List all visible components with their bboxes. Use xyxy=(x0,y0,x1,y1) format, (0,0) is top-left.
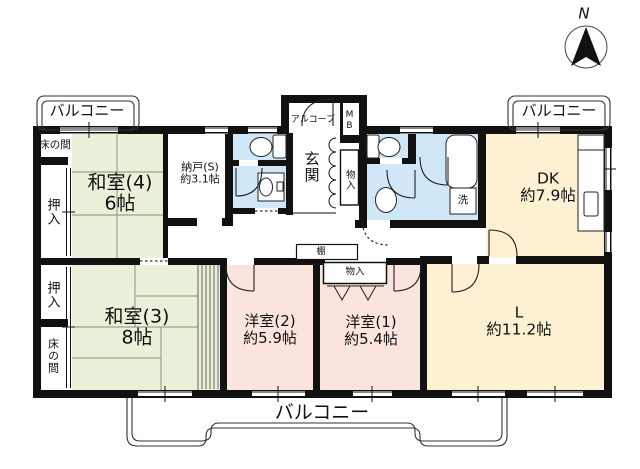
balcony-label-top-right: バルコニー xyxy=(522,103,597,120)
room-area: 約7.9帖 xyxy=(520,188,576,205)
room-label-washitsu3: 和室(3) 8帖 xyxy=(105,307,170,350)
window-symbol xyxy=(248,127,277,134)
window-symbol xyxy=(400,127,433,134)
room-area: 6帖 xyxy=(88,194,153,215)
tokonoma-top-label: 床の間 xyxy=(39,140,71,152)
room-label-nando: 納戸(S) 約3.1帖 xyxy=(180,162,220,187)
floor-plan: N バルコニー バルコニー バルコニー 床の間 和室(4) 6帖 納戸(S) 約… xyxy=(0,0,640,469)
tokonoma-bottom-label: 床の間 xyxy=(48,338,59,374)
room-area: 約5.4帖 xyxy=(344,331,398,348)
genkan-label: 玄関 xyxy=(304,151,319,183)
floor-plan-drawing xyxy=(0,0,640,469)
washbasin-icon xyxy=(376,188,397,213)
room-name: DK xyxy=(520,171,576,188)
compass-icon xyxy=(565,26,607,68)
balcony-label-bottom: バルコニー xyxy=(275,402,370,423)
room-name: 和室(4) xyxy=(88,173,153,194)
window-symbol xyxy=(605,232,612,252)
room-name: L xyxy=(486,305,552,322)
balcony-label-top-left: バルコニー xyxy=(50,103,125,120)
room-area: 約11.2帖 xyxy=(486,322,552,339)
bathtub-icon xyxy=(446,135,477,188)
oshiire-top-label: 押入 xyxy=(46,198,59,226)
compass-north-label: N xyxy=(578,6,589,23)
shelf-box xyxy=(297,245,358,260)
room-name: 洋室(1) xyxy=(344,314,398,331)
alcove-label: アルコーブ xyxy=(291,115,335,125)
kitchen-counter xyxy=(578,135,604,231)
oshiire-bottom-label: 押入 xyxy=(46,281,59,309)
room-name: 和室(3) xyxy=(105,307,170,328)
room-label-living: L 約11.2帖 xyxy=(486,305,552,340)
room-label-yoshitsu2: 洋室(2) 約5.9帖 xyxy=(243,313,297,347)
room-label-washitsu4: 和室(4) 6帖 xyxy=(88,173,153,216)
bedroom-closet-label: 物入 xyxy=(345,268,364,279)
room-label-dk: DK 約7.9帖 xyxy=(520,171,576,206)
closet-strip-floor xyxy=(198,262,220,390)
room-name: 洋室(2) xyxy=(243,313,297,330)
shelf-label: 棚 xyxy=(316,247,325,257)
room-area: 約3.1帖 xyxy=(180,174,220,186)
window-symbol xyxy=(205,127,228,134)
room-area: 8帖 xyxy=(105,328,170,349)
meter-box-label: MB xyxy=(345,110,354,132)
room-label-yoshitsu1: 洋室(1) 約5.4帖 xyxy=(344,314,398,348)
hall-storage-label: 物入 xyxy=(344,170,354,191)
kitchen-sink-icon xyxy=(584,192,598,216)
room-area: 約5.9帖 xyxy=(243,330,297,347)
washbasin-icon xyxy=(258,173,284,201)
shoe-cabinet-scallops xyxy=(329,138,336,208)
washer-label: 洗 xyxy=(458,195,469,207)
